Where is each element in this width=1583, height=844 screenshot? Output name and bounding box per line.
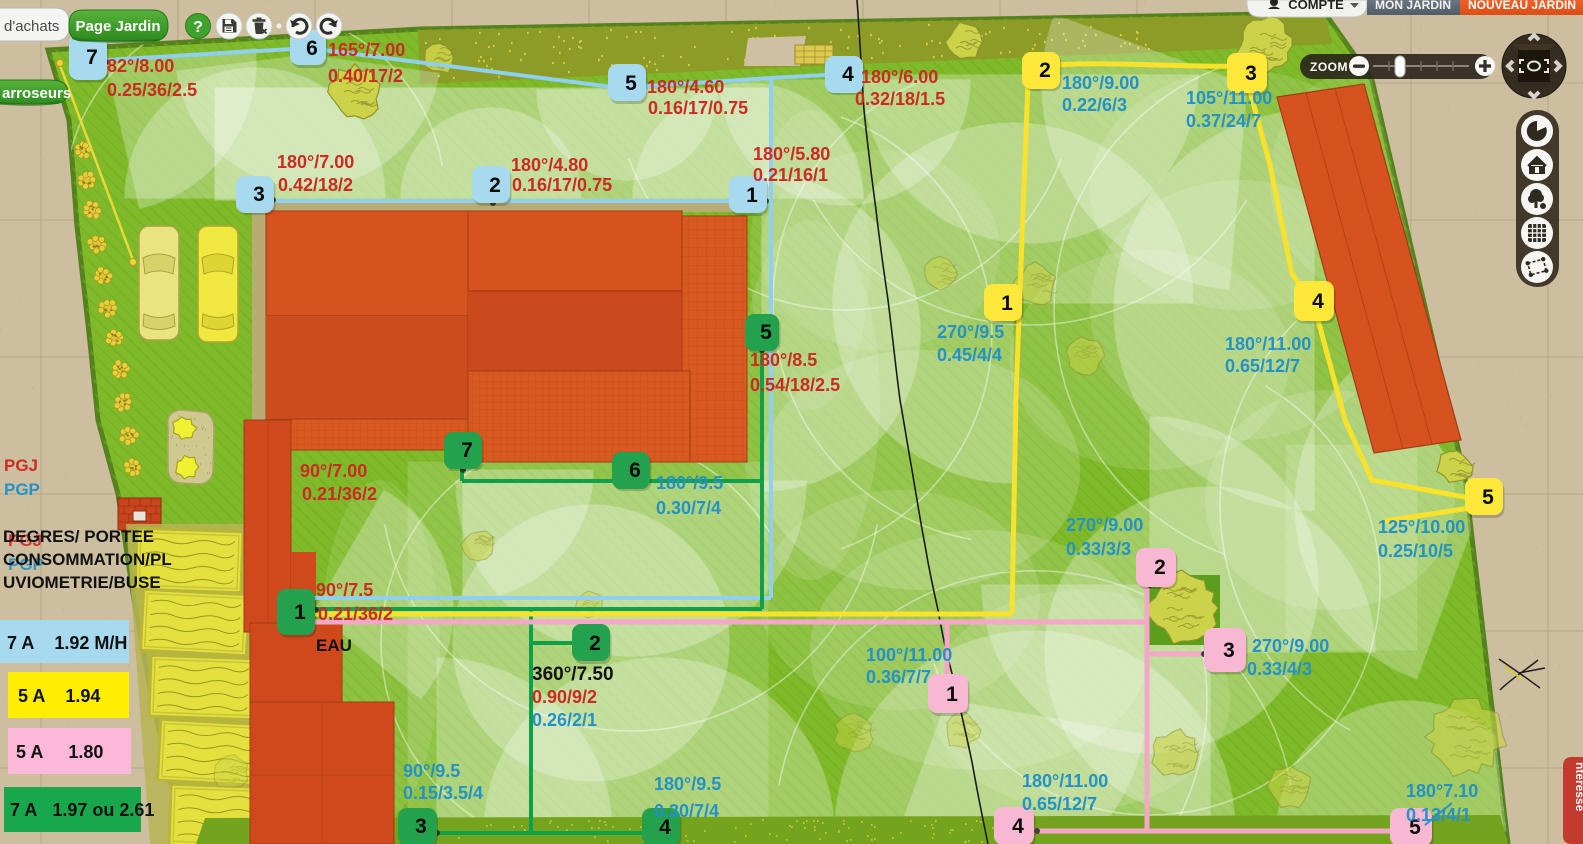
svg-text:UVIOMETRIE/BUSE: UVIOMETRIE/BUSE xyxy=(3,573,161,592)
svg-text:3: 3 xyxy=(415,815,427,838)
svg-text:180°/9.00: 180°/9.00 xyxy=(1062,73,1139,93)
svg-text:180°/8.5: 180°/8.5 xyxy=(750,350,817,370)
svg-text:0.65/12/7: 0.65/12/7 xyxy=(1022,794,1097,814)
svg-text:90°/9.5: 90°/9.5 xyxy=(403,761,460,781)
svg-text:d'achats: d'achats xyxy=(4,18,59,35)
svg-text:5: 5 xyxy=(1482,486,1494,509)
svg-text:2: 2 xyxy=(489,174,501,197)
svg-text:180°/7.00: 180°/7.00 xyxy=(277,152,354,172)
svg-text:MON JARDIN: MON JARDIN xyxy=(1375,0,1451,12)
svg-text:180°/4.80: 180°/4.80 xyxy=(511,155,588,175)
svg-text:2: 2 xyxy=(589,632,601,655)
svg-text:125°/10.00: 125°/10.00 xyxy=(1378,517,1465,537)
svg-text:0.33/3/3: 0.33/3/3 xyxy=(1066,539,1131,559)
svg-text:0.25/10/5: 0.25/10/5 xyxy=(1378,541,1453,561)
svg-text:180°/11.00: 180°/11.00 xyxy=(1022,771,1108,791)
svg-text:0.22/6/3: 0.22/6/3 xyxy=(1062,95,1127,115)
svg-text:5 A 1.94: 5 A 1.94 xyxy=(18,686,100,706)
svg-text:3: 3 xyxy=(253,183,265,206)
svg-text:CONSOMMATION/PL: CONSOMMATION/PL xyxy=(3,550,172,569)
svg-text:180°7.10: 180°7.10 xyxy=(1406,781,1478,801)
svg-text:180°/11.00: 180°/11.00 xyxy=(1225,334,1311,354)
svg-text:7 A 1.92 M/H: 7 A 1.92 M/H xyxy=(7,633,127,653)
svg-text:270°/9.5: 270°/9.5 xyxy=(937,322,1004,342)
svg-text:0.16/17/0.75: 0.16/17/0.75 xyxy=(648,98,748,118)
svg-text:105°/11.00: 105°/11.00 xyxy=(1186,88,1272,108)
svg-text:82°/8.00: 82°/8.00 xyxy=(107,56,174,76)
svg-text:165°/7.00: 165°/7.00 xyxy=(328,40,405,60)
svg-text:PGJ: PGJ xyxy=(4,456,38,475)
svg-text:0.30/7/4: 0.30/7/4 xyxy=(654,801,719,821)
svg-text:0.25/36/2.5: 0.25/36/2.5 xyxy=(107,80,197,100)
svg-text:0.45/4/4: 0.45/4/4 xyxy=(937,345,1002,365)
svg-text:2: 2 xyxy=(1039,59,1051,82)
svg-text:ZOOM: ZOOM xyxy=(1310,60,1348,74)
svg-text:6: 6 xyxy=(306,37,318,60)
svg-text:4: 4 xyxy=(842,63,854,86)
svg-text:5: 5 xyxy=(760,321,772,344)
svg-text:0.30/7/4: 0.30/7/4 xyxy=(656,498,721,518)
svg-text:0.54/18/2.5: 0.54/18/2.5 xyxy=(750,375,840,395)
svg-text:0.26/2/1: 0.26/2/1 xyxy=(532,710,597,730)
svg-text:Page Jardin: Page Jardin xyxy=(75,18,160,35)
svg-text:0.42/18/2: 0.42/18/2 xyxy=(278,175,353,195)
svg-text:?: ? xyxy=(193,19,203,36)
svg-text:6: 6 xyxy=(629,459,641,482)
svg-text:180°/6.00: 180°/6.00 xyxy=(861,67,938,87)
svg-text:0.15/3.5/4: 0.15/3.5/4 xyxy=(403,783,483,803)
svg-text:180°/4.60: 180°/4.60 xyxy=(647,77,724,97)
svg-text:5: 5 xyxy=(625,72,637,95)
svg-text:7: 7 xyxy=(86,46,98,69)
svg-text:2: 2 xyxy=(1154,556,1166,579)
svg-text:360°/7.50: 360°/7.50 xyxy=(532,664,614,685)
svg-text:PGP: PGP xyxy=(4,480,40,499)
svg-text:0.32/18/1.5: 0.32/18/1.5 xyxy=(855,89,945,109)
svg-text:180°/9.5: 180°/9.5 xyxy=(656,473,723,493)
svg-text:1: 1 xyxy=(746,184,758,207)
svg-text:3: 3 xyxy=(1223,639,1235,662)
svg-text:7: 7 xyxy=(461,439,473,462)
svg-text:ntéresse: ntéresse xyxy=(1573,762,1583,812)
svg-text:3: 3 xyxy=(1245,62,1257,85)
svg-text:1: 1 xyxy=(294,601,306,624)
svg-text:0.40/17/2: 0.40/17/2 xyxy=(328,66,403,86)
svg-text:EAU: EAU xyxy=(316,636,352,655)
svg-text:0.33/4/3: 0.33/4/3 xyxy=(1247,659,1312,679)
svg-text:NOUVEAU JARDIN: NOUVEAU JARDIN xyxy=(1468,0,1576,12)
svg-text:270°/9.00: 270°/9.00 xyxy=(1252,636,1329,656)
svg-text:0.21/36/2: 0.21/36/2 xyxy=(302,484,377,504)
svg-text:0.36/7/7: 0.36/7/7 xyxy=(866,667,931,687)
svg-text:COMPTE: COMPTE xyxy=(1288,0,1344,12)
svg-text:0.65/12/7: 0.65/12/7 xyxy=(1225,356,1300,376)
svg-text:1: 1 xyxy=(1001,292,1013,315)
svg-text:DEGRES/ PORTEE: DEGRES/ PORTEE xyxy=(3,527,154,546)
svg-text:7 A 1.97 ou 2.61: 7 A 1.97 ou 2.61 xyxy=(10,800,154,820)
svg-text:0.21/36/2: 0.21/36/2 xyxy=(318,604,393,624)
svg-text:0.16/17/0.75: 0.16/17/0.75 xyxy=(512,175,612,195)
svg-text:5 A 1.80: 5 A 1.80 xyxy=(16,742,103,762)
svg-text:4: 4 xyxy=(1312,290,1324,313)
svg-text:1: 1 xyxy=(946,683,958,706)
svg-text:90°/7.00: 90°/7.00 xyxy=(300,461,367,481)
svg-text:180°/5.80: 180°/5.80 xyxy=(753,144,830,164)
svg-text:0.90/9/2: 0.90/9/2 xyxy=(532,687,597,707)
svg-text:4: 4 xyxy=(1012,815,1024,838)
svg-text:90°/7.5: 90°/7.5 xyxy=(316,580,373,600)
svg-text:0.37/24/7: 0.37/24/7 xyxy=(1186,111,1261,131)
svg-text:100°/11.00: 100°/11.00 xyxy=(866,645,952,665)
svg-text:0.21/16/1: 0.21/16/1 xyxy=(753,165,828,185)
svg-text:arroseurs: arroseurs xyxy=(2,85,71,102)
svg-text:180°/9.5: 180°/9.5 xyxy=(654,774,721,794)
svg-text:270°/9.00: 270°/9.00 xyxy=(1066,515,1143,535)
